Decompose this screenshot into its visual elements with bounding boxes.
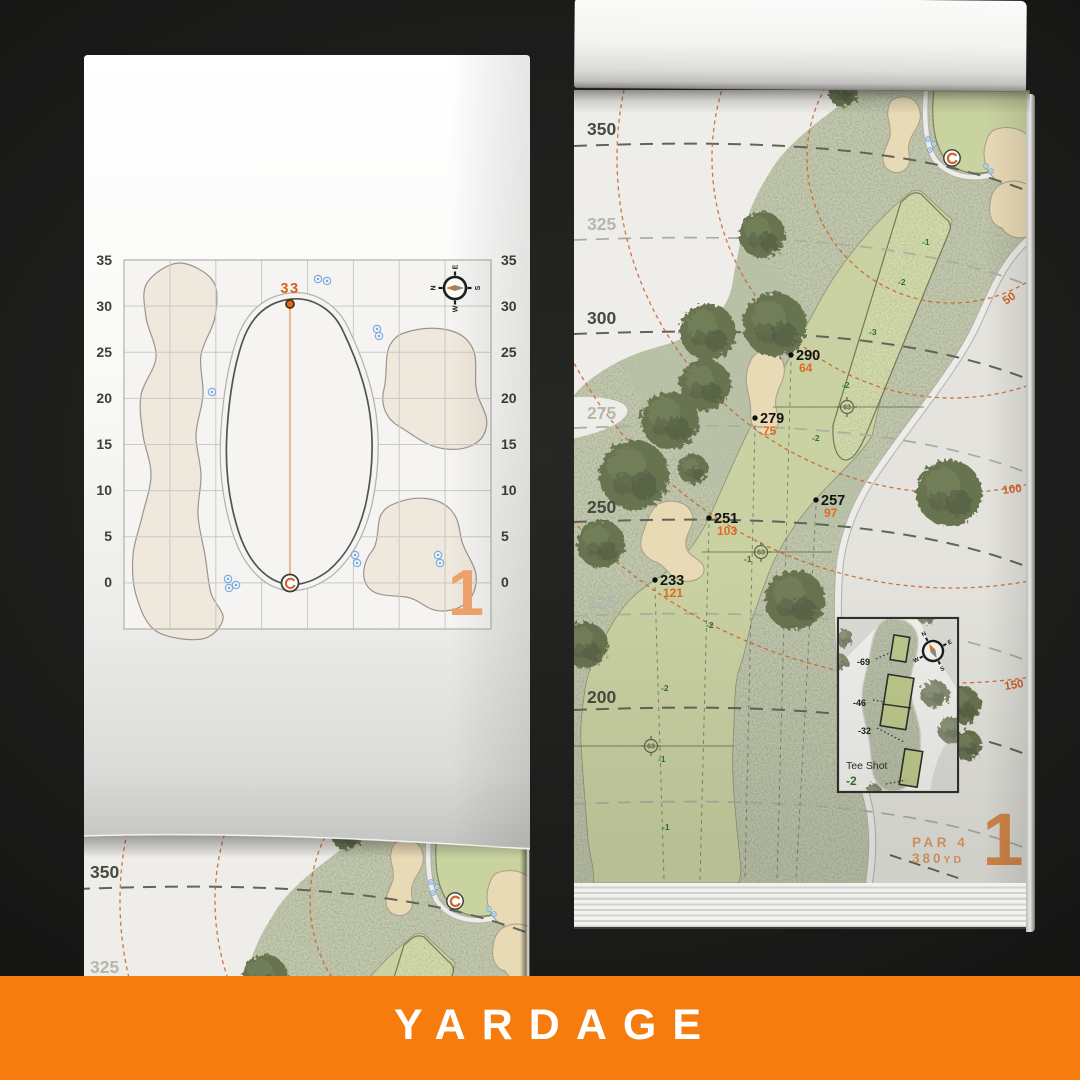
svg-text:25: 25 [96, 344, 112, 360]
svg-text:5: 5 [104, 528, 112, 544]
svg-text:35: 35 [96, 252, 112, 268]
svg-text:20: 20 [96, 390, 112, 406]
svg-text:1: 1 [448, 556, 484, 629]
svg-text:33: 33 [280, 281, 299, 297]
svg-text:0: 0 [104, 574, 112, 590]
svg-text:N: N [431, 285, 438, 290]
svg-text:10: 10 [96, 482, 112, 498]
svg-text:30: 30 [96, 298, 112, 314]
svg-text:15: 15 [96, 436, 112, 452]
